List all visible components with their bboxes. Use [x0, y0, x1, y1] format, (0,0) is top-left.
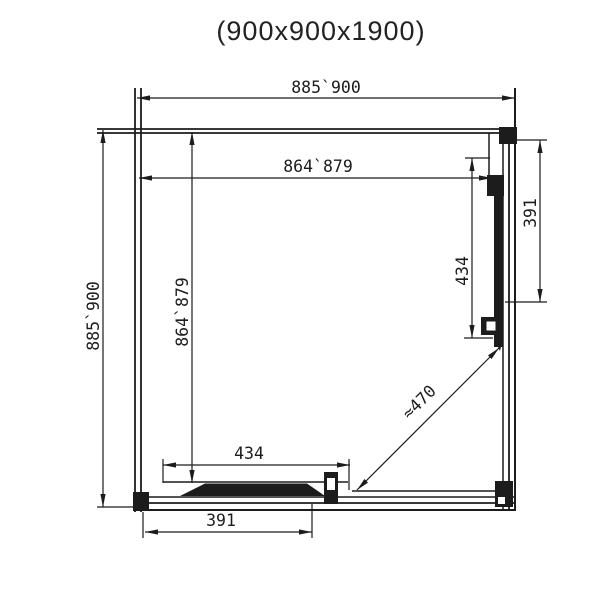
dim-bottom-door-label: 434 — [234, 444, 264, 463]
arrowhead-left — [137, 95, 150, 100]
arrowhead-left — [145, 529, 158, 534]
bottom-right-bracket-notch — [498, 497, 505, 504]
arrowhead-down — [189, 470, 194, 483]
arrowhead-up — [189, 132, 194, 145]
arrowhead-left — [163, 462, 176, 467]
bottom-sliding-door — [163, 472, 348, 504]
bottom-door-panel — [180, 484, 325, 497]
arrowhead-down — [469, 325, 474, 338]
arrowhead-right — [502, 95, 515, 100]
dim-bottom-door-434: 434 — [163, 444, 350, 490]
drawing-title: (900x900x1900) — [216, 16, 425, 46]
right-sliding-door — [481, 175, 504, 351]
arrowhead-down — [537, 289, 542, 302]
dim-right-door-label: 434 — [453, 256, 472, 286]
arrowhead-down — [100, 494, 105, 507]
bottom-door-handle-hole — [327, 478, 335, 490]
arrowhead-up — [100, 130, 105, 143]
dim-bottom-fixed-label: 391 — [206, 511, 236, 530]
top-right-corner-bracket — [499, 127, 517, 144]
enclosure-structure — [97, 88, 517, 512]
bottom-left-corner-bracket — [133, 492, 149, 511]
diagonal-dim-line — [357, 348, 499, 490]
dim-left-outer-height: 885`900 — [84, 130, 135, 507]
arrowhead-up — [537, 140, 542, 153]
dim-top-outer-width: 885`900 — [137, 78, 515, 101]
dim-diagonal-label: ≈470 — [398, 381, 440, 423]
dim-left-inner-height-label: 864`879 — [173, 277, 192, 347]
dim-diagonal-opening: ≈470 — [357, 348, 499, 490]
right-door-handle-hole — [487, 322, 496, 331]
dim-right-fixed-label: 391 — [521, 198, 540, 228]
dim-right-fixed-391: 391 — [505, 140, 547, 302]
dim-left-inner-height: 864`879 — [173, 132, 195, 483]
arrowhead-up — [469, 158, 474, 171]
arrowhead-right — [299, 529, 312, 534]
dim-left-outer-height-label: 885`900 — [84, 281, 103, 351]
technical-drawing-page: (900x900x1900) — [0, 0, 600, 600]
shower-enclosure-plan-drawing: (900x900x1900) — [0, 0, 600, 600]
dim-top-inner-width-label: 864`879 — [283, 157, 353, 176]
dim-top-outer-width-label: 885`900 — [291, 78, 361, 97]
arrowhead-right — [337, 462, 350, 467]
